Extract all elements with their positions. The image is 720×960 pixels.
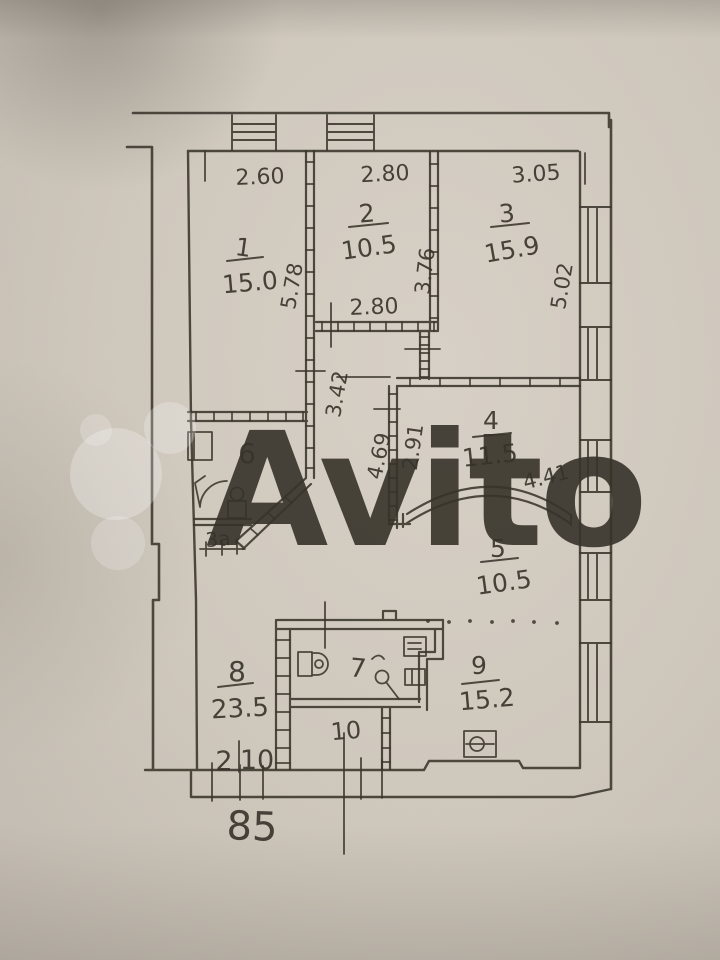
room-2-number: 2 [358,198,376,228]
watermark-logo-circle-small [80,414,112,446]
room-8-area: 23.5 [210,693,269,726]
dim-room2-width: 2.80 [360,161,410,189]
dim-room2-width-bottom: 2.80 [349,294,399,321]
dim-room1-width: 2.60 [235,164,285,191]
watermark-logo-circle-bottom [91,516,145,570]
floor-total: 10 [240,745,274,776]
room-7-number: 7 [348,653,367,684]
room-1-area: 15.0 [221,266,279,300]
floor-current: 2 [215,746,232,777]
room-8-number: 8 [228,655,246,688]
room-3-number: 3 [498,198,516,228]
bottom-number: 85 [226,803,278,851]
floor-plan-photo: 2.60 2.80 3.05 1 15.0 5.78 2 10.5 3.76 3… [0,0,720,960]
room-9-area: 15.2 [458,683,516,717]
room-10-number: 10 [330,716,363,747]
floor-plan-drawing: 2.60 2.80 3.05 1 15.0 5.78 2 10.5 3.76 3… [0,0,720,960]
watermark-logo-circle-top [144,402,196,454]
dim-room3-width: 3.05 [511,160,562,188]
room-9-number: 9 [471,651,487,680]
watermark-text: Avito [206,399,644,583]
